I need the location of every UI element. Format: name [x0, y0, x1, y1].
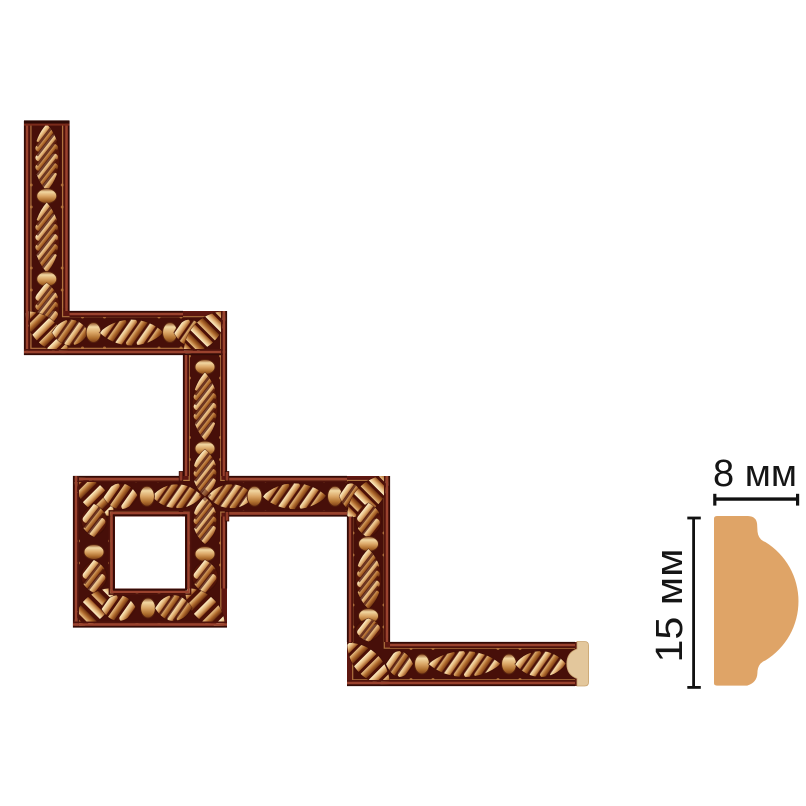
svg-text:8 мм: 8 мм — [713, 453, 797, 495]
svg-text:15 мм: 15 мм — [649, 549, 691, 663]
